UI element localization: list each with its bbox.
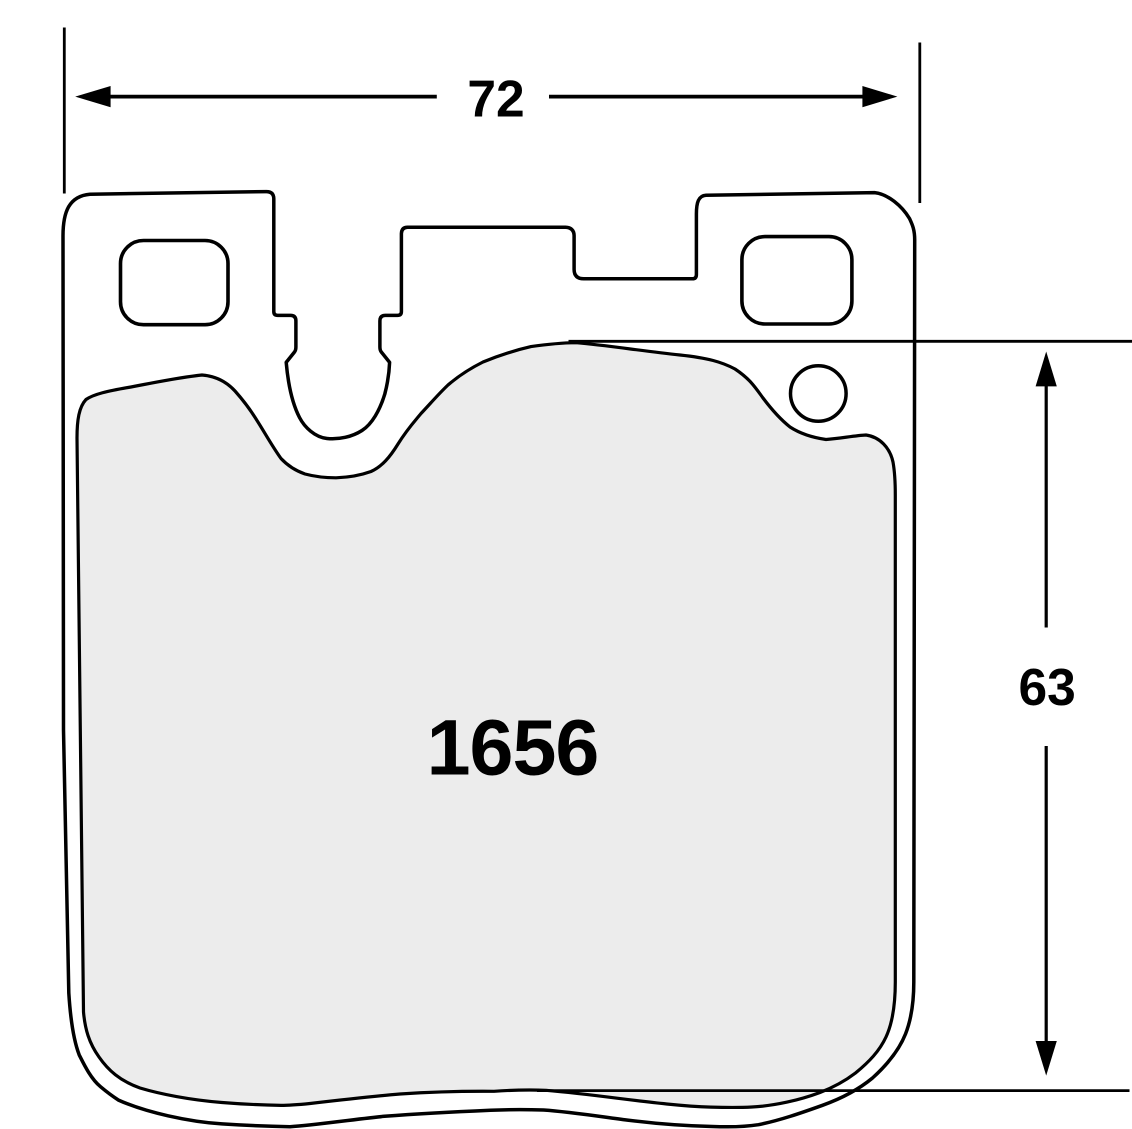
svg-text:72: 72 xyxy=(467,70,524,128)
svg-text:1656: 1656 xyxy=(427,703,599,792)
svg-text:63: 63 xyxy=(1018,658,1075,716)
